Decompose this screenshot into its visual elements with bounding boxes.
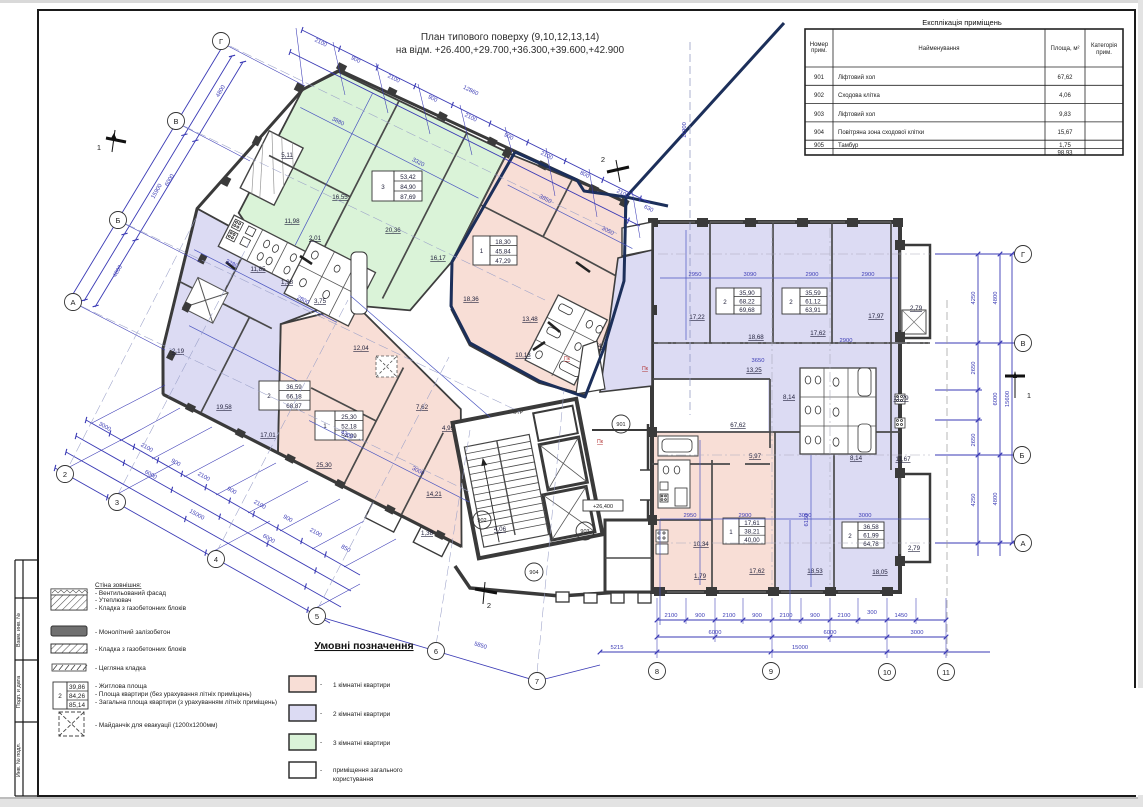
svg-text:25,30: 25,30 [341,414,357,421]
svg-text:3650: 3650 [752,358,765,364]
svg-text:В: В [173,117,178,126]
svg-text:Категорія: Категорія [1091,43,1117,49]
svg-text:39,86: 39,86 [69,684,85,691]
svg-text:2: 2 [58,693,62,700]
svg-text:2100: 2100 [838,613,851,619]
svg-text:67,62: 67,62 [730,422,746,429]
svg-text:- Кладка з газобетонних блоків: - Кладка з газобетонних блоків [95,645,187,653]
svg-text:- Кладка з газобетонних блоків: - Кладка з газобетонних блоків [95,604,187,612]
svg-text:6000: 6000 [709,630,722,636]
svg-text:- Монолітний залізобетон: - Монолітний залізобетон [95,628,171,636]
svg-text:1: 1 [729,529,733,536]
svg-text:16,55: 16,55 [332,194,348,201]
svg-text:3000: 3000 [859,513,872,519]
svg-text:- Житлова площа: - Житлова площа [95,683,147,690]
svg-text:84,26: 84,26 [69,693,85,700]
svg-text:1: 1 [1027,391,1031,400]
svg-text:3: 3 [381,184,385,191]
svg-text:4,06: 4,06 [494,526,507,533]
svg-text:-: - [320,710,322,717]
svg-text:Найменування: Найменування [918,45,959,52]
svg-text:47,29: 47,29 [495,258,511,265]
svg-text:87,69: 87,69 [400,194,416,201]
svg-text:11,85: 11,85 [250,266,266,273]
svg-text:Стіна зовнішня:: Стіна зовнішня: [95,581,142,589]
svg-text:- Вентильований фасад: - Вентильований фасад [95,589,166,597]
svg-text:17,62: 17,62 [749,568,765,575]
svg-text:19,58: 19,58 [216,404,232,411]
svg-text:3090: 3090 [744,272,757,278]
svg-text:2,79: 2,79 [908,545,921,552]
svg-text:6000: 6000 [993,393,999,406]
svg-text:-: - [320,767,322,774]
svg-text:5,11: 5,11 [281,152,293,159]
svg-text:64,78: 64,78 [863,541,879,548]
svg-text:300: 300 [867,610,877,616]
svg-text:користування: користування [333,776,374,783]
svg-text:2: 2 [63,470,67,479]
svg-text:11,67: 11,67 [895,456,911,463]
svg-text:прим.: прим. [811,48,827,54]
svg-text:17,62: 17,62 [810,330,826,337]
svg-text:8,14: 8,14 [783,394,796,401]
svg-text:901: 901 [814,75,825,81]
svg-text:12,04: 12,04 [353,345,369,352]
svg-text:Площа, м²: Площа, м² [1051,46,1080,52]
svg-text:А: А [70,298,75,307]
svg-text:10,13: 10,13 [515,352,531,359]
svg-text:18,30: 18,30 [495,239,511,246]
svg-text:4250: 4250 [971,494,977,507]
svg-text:2,79: 2,79 [910,305,923,312]
svg-text:38,21: 38,21 [744,529,760,536]
svg-text:- Цегляна кладка: - Цегляна кладка [95,665,146,672]
svg-text:69,68: 69,68 [739,307,755,314]
svg-text:1,98: 1,98 [281,279,294,286]
svg-text:Г: Г [1021,250,1025,259]
svg-text:2: 2 [723,299,727,306]
svg-text:36,58: 36,58 [863,524,879,531]
svg-text:901: 901 [616,422,625,428]
svg-text:Пк: Пк [597,439,604,445]
svg-text:Б: Б [116,216,121,225]
svg-text:4800: 4800 [993,493,999,506]
svg-text:+26,400: +26,400 [593,504,613,510]
svg-text:1 кімнатні квартири: 1 кімнатні квартири [333,681,391,689]
svg-text:15600: 15600 [1005,391,1011,407]
svg-text:2950: 2950 [689,272,702,278]
svg-text:18,53: 18,53 [807,568,823,575]
svg-text:61,99: 61,99 [863,533,879,540]
svg-text:- Майданчік для евакуації (120: - Майданчік для евакуації (1200х1200мм) [95,721,218,729]
svg-text:2: 2 [848,533,852,540]
svg-text:15,67: 15,67 [1057,130,1073,136]
svg-text:на відм. +26.400,+29.700,+36.3: на відм. +26.400,+29.700,+36.300,+39.600… [396,45,625,56]
svg-text:2950: 2950 [684,513,697,519]
svg-text:4: 4 [214,555,218,564]
svg-text:2: 2 [789,299,793,306]
svg-text:13,25: 13,25 [746,367,762,374]
svg-text:35,59: 35,59 [805,290,821,297]
svg-text:66,18: 66,18 [286,394,302,401]
svg-text:10,34: 10,34 [693,541,709,548]
svg-text:7: 7 [535,677,539,686]
svg-text:Ліфтовий хол: Ліфтовий хол [838,111,876,118]
svg-text:Подп. и дата: Подп. и дата [16,675,22,708]
svg-text:-: - [320,739,322,746]
svg-text:2900: 2900 [862,272,875,278]
svg-text:11,79: 11,79 [893,395,909,402]
svg-text:Експлікація приміщень: Експлікація приміщень [922,18,1002,27]
svg-text:16,17: 16,17 [430,255,446,262]
svg-text:61,12: 61,12 [805,299,821,306]
svg-text:Тамбур: Тамбур [838,143,859,149]
svg-text:98,93: 98,93 [1057,151,1073,157]
svg-text:25,30: 25,30 [316,462,332,469]
svg-text:9: 9 [769,667,773,676]
svg-text:63,91: 63,91 [805,307,821,314]
svg-text:11: 11 [942,668,950,677]
svg-text:904: 904 [529,570,538,576]
svg-text:14,21: 14,21 [426,491,442,498]
svg-text:903: 903 [580,529,589,535]
svg-text:2,19: 2,19 [172,348,185,355]
svg-text:20,36: 20,36 [385,227,401,234]
svg-text:84,90: 84,90 [400,184,416,191]
svg-text:13,48: 13,48 [522,316,538,323]
svg-text:Ліфтовий хол: Ліфтовий хол [838,74,876,81]
svg-text:67,62: 67,62 [1057,75,1073,81]
svg-text:5: 5 [315,612,319,621]
svg-text:905: 905 [814,143,825,149]
svg-text:2100: 2100 [665,613,678,619]
svg-text:11,98: 11,98 [284,218,300,225]
svg-text:2: 2 [487,601,491,610]
svg-text:Б: Б [1020,451,1025,460]
svg-text:900: 900 [752,613,762,619]
svg-text:5215: 5215 [611,645,624,651]
svg-text:902: 902 [814,93,825,99]
svg-text:17,61: 17,61 [744,520,760,527]
svg-text:2100: 2100 [780,613,793,619]
svg-text:11900: 11900 [682,122,688,138]
svg-text:1,38: 1,38 [421,530,434,537]
svg-text:68,22: 68,22 [739,299,755,306]
svg-text:85,14: 85,14 [69,702,85,709]
svg-text:Пк: Пк [642,366,649,372]
svg-text:36,59: 36,59 [286,384,302,391]
svg-text:4250: 4250 [971,292,977,305]
svg-text:5,97: 5,97 [749,453,762,460]
svg-text:17,01: 17,01 [260,432,276,439]
svg-text:15000: 15000 [792,645,808,651]
svg-text:18,36: 18,36 [463,296,479,303]
svg-text:900: 900 [695,613,705,619]
svg-text:приміщення загального: приміщення загального [333,766,403,774]
svg-text:2650: 2650 [971,434,977,447]
svg-text:2900: 2900 [806,272,819,278]
svg-text:18,05: 18,05 [872,569,888,576]
svg-text:900: 900 [810,613,820,619]
svg-text:1450: 1450 [895,613,908,619]
svg-text:3050: 3050 [799,513,812,519]
svg-text:2650: 2650 [971,362,977,375]
svg-text:- Утеплювач: - Утеплювач [95,597,131,604]
svg-text:7,62: 7,62 [416,404,429,411]
svg-text:Взам. инв. №: Взам. инв. № [16,613,22,647]
svg-text:902: 902 [477,518,486,524]
svg-text:35,90: 35,90 [739,290,755,297]
svg-text:8: 8 [655,667,659,676]
svg-text:Умовні позначення: Умовні позначення [314,640,413,652]
svg-text:1: 1 [480,248,484,255]
svg-text:53,42: 53,42 [400,174,416,181]
svg-text:1: 1 [97,143,101,152]
svg-text:8,14: 8,14 [850,455,863,462]
svg-text:Г: Г [219,37,223,46]
svg-text:2100: 2100 [723,613,736,619]
svg-text:3,75: 3,75 [314,298,327,305]
svg-text:17,22: 17,22 [689,314,705,321]
svg-text:- Загальна площа квартири (з у: - Загальна площа квартири (з урахуванням… [95,698,277,706]
svg-text:А: А [1020,539,1025,548]
svg-text:-: - [320,681,322,688]
svg-text:17,97: 17,97 [868,313,884,320]
svg-text:3000: 3000 [911,630,924,636]
svg-text:3 кімнатні квартири: 3 кімнатні квартири [333,739,391,747]
svg-text:904: 904 [814,130,825,136]
svg-text:10: 10 [883,668,891,677]
svg-text:903: 903 [814,112,825,118]
svg-text:1,75: 1,75 [1059,143,1071,149]
svg-text:68,87: 68,87 [286,403,302,410]
svg-text:6000: 6000 [824,630,837,636]
svg-text:Пк: Пк [564,356,571,362]
svg-text:Инв. № подл.: Инв. № подл. [16,742,22,777]
svg-text:- Площа квартири (без урахуван: - Площа квартири (без урахування літніх … [95,690,252,698]
svg-text:4,06: 4,06 [1059,93,1071,99]
svg-text:6: 6 [434,647,438,656]
svg-text:прим.: прим. [1096,50,1112,56]
svg-text:В: В [1020,339,1025,348]
svg-text:2900: 2900 [739,513,752,519]
svg-text:2: 2 [601,155,605,164]
svg-text:45,84: 45,84 [495,249,511,256]
svg-text:Повітряна зона сходової клітки: Повітряна зона сходової клітки [838,130,924,136]
svg-text:4800: 4800 [993,292,999,305]
svg-text:18,68: 18,68 [748,334,764,341]
svg-text:2 кімнатні квартири: 2 кімнатні квартири [333,710,391,718]
svg-text:План типового поверху (9,10,12: План типового поверху (9,10,12,13,14) [421,32,599,43]
svg-text:3: 3 [115,498,119,507]
svg-text:9,83: 9,83 [1059,112,1071,118]
svg-text:Сходова клітка: Сходова клітка [838,93,880,99]
svg-text:2,01: 2,01 [309,235,322,242]
